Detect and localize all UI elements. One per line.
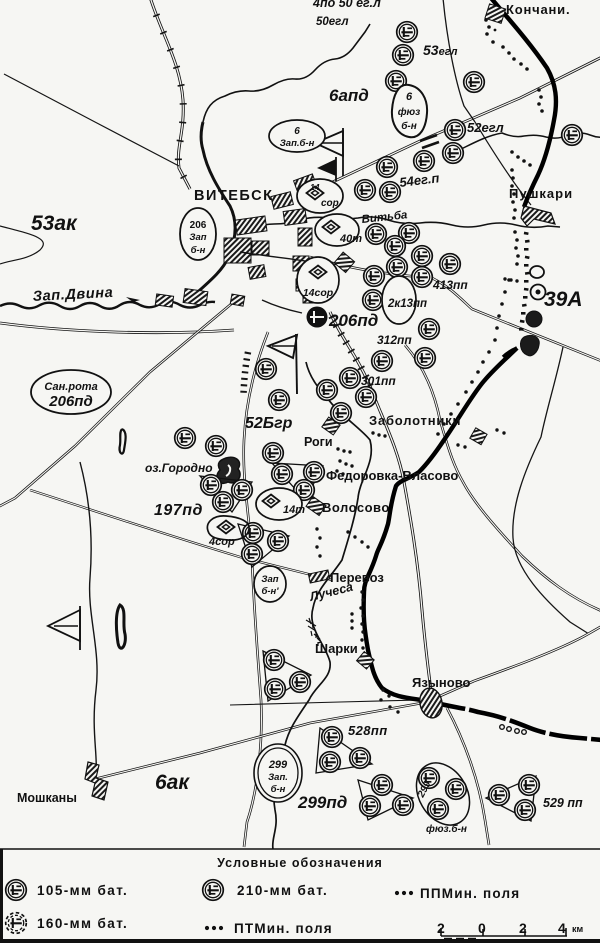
svg-text:б-н: б-н	[191, 245, 206, 256]
svg-text:2к13пп: 2к13пп	[387, 298, 427, 310]
svg-text:оз.Городно: оз.Городно	[145, 461, 213, 475]
svg-text:Волосово: Волосово	[322, 500, 390, 515]
svg-text:197пд: 197пд	[154, 502, 203, 519]
svg-text:Зап: Зап	[261, 574, 278, 585]
svg-text:312пп: 312пп	[377, 333, 412, 347]
svg-text:39А: 39А	[544, 288, 583, 311]
svg-text:6: 6	[294, 126, 300, 137]
svg-text:Языново: Языново	[412, 675, 471, 690]
svg-text:299пд: 299пд	[297, 793, 347, 812]
svg-text:6ак: 6ак	[155, 771, 190, 794]
svg-text:4: 4	[558, 920, 566, 936]
svg-text:Роги: Роги	[304, 435, 333, 449]
svg-text:53ак: 53ак	[31, 212, 78, 235]
svg-text:Кончани.: Кончани.	[506, 2, 570, 17]
svg-text:б-н: б-н	[401, 120, 417, 132]
svg-text:фюз: фюз	[398, 106, 421, 118]
svg-text:4по 50 ег.л: 4по 50 ег.л	[312, 0, 381, 10]
svg-text:Пушкари: Пушкари	[509, 186, 573, 201]
svg-text:52Бгр: 52Бгр	[245, 415, 293, 432]
svg-text:сор: сор	[321, 198, 339, 209]
svg-text:Заболотники: Заболотники	[369, 413, 461, 428]
svg-text:км: км	[572, 924, 584, 934]
svg-text:б-н: б-н	[271, 784, 286, 795]
svg-text:160-мм бат.: 160-мм бат.	[37, 916, 128, 931]
svg-text:б-н': б-н'	[261, 586, 279, 597]
svg-text:ППМин. поля: ППМин. поля	[420, 886, 520, 901]
svg-text:фюз.б-н: фюз.б-н	[426, 823, 467, 835]
svg-text:Мошканы: Мошканы	[17, 791, 77, 805]
svg-text:299: 299	[268, 759, 288, 771]
svg-text:6: 6	[406, 91, 413, 103]
svg-text:14т: 14т	[283, 504, 305, 516]
svg-text:4сор: 4сор	[208, 536, 235, 548]
svg-text:50егл: 50егл	[316, 16, 348, 28]
svg-text:210-мм бат.: 210-мм бат.	[237, 883, 328, 898]
svg-text:206пд: 206пд	[328, 311, 378, 330]
svg-text:529 пп: 529 пп	[543, 796, 583, 810]
svg-text:14сор: 14сор	[303, 287, 334, 299]
svg-text:52егл: 52егл	[467, 120, 504, 135]
svg-text:6апд: 6апд	[329, 86, 369, 105]
svg-text:Шарки: Шарки	[315, 641, 358, 656]
svg-text:ВИТЕБСК: ВИТЕБСК	[194, 188, 273, 204]
svg-text:Условные обозначения: Условные обозначения	[217, 856, 383, 870]
svg-text:528пп: 528пп	[348, 723, 388, 738]
svg-text:105-мм бат.: 105-мм бат.	[37, 883, 128, 898]
svg-text:206: 206	[190, 220, 207, 231]
svg-text:Сан.рота: Сан.рота	[44, 381, 97, 393]
svg-text:40т: 40т	[339, 233, 362, 245]
svg-text:413пп: 413пп	[432, 278, 468, 292]
svg-text:Зап: Зап	[189, 232, 206, 243]
svg-text:ПТМин. поля: ПТМин. поля	[234, 921, 333, 936]
svg-text:301пп: 301пп	[361, 374, 396, 388]
svg-text:Зап.: Зап.	[268, 772, 288, 783]
svg-text:Зап.б-н: Зап.б-н	[280, 138, 315, 149]
svg-text:206пд: 206пд	[48, 393, 92, 410]
svg-text:Федоровка-Власово: Федоровка-Власово	[326, 468, 458, 483]
svg-text:14: 14	[310, 182, 320, 192]
svg-text:0: 0	[478, 920, 486, 936]
